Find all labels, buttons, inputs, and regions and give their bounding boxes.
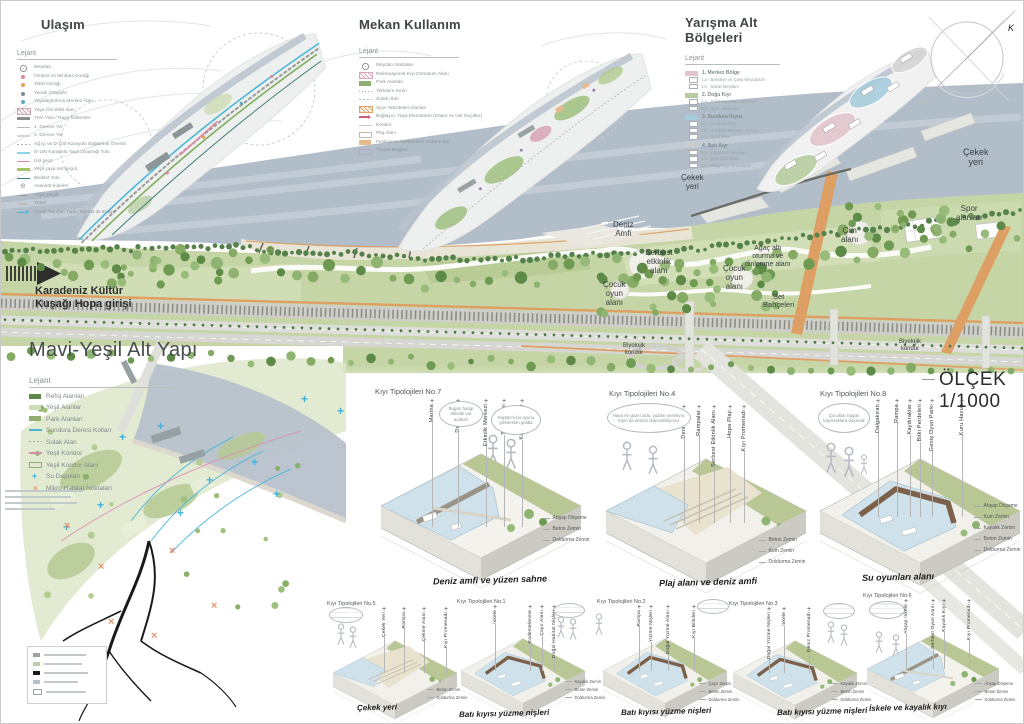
leader-line	[404, 628, 405, 673]
micro-habitat-icon: ×	[151, 632, 157, 640]
legend-item: Yeşil yaya üst geçidi	[17, 167, 129, 173]
callout-label-text: Ahşap İskele	[904, 604, 909, 634]
leader-line	[744, 451, 745, 523]
typology-title: Kıyı Tipolojileri No.4	[609, 389, 675, 398]
callout-label-text: Kıyı Promenadı	[741, 410, 747, 451]
callout-label: + Kıyı Promenadı	[739, 405, 749, 523]
material-label: Doldurma Zemin	[975, 697, 1015, 702]
legend-item-label: Yerleşim Sınırı	[376, 89, 407, 95]
typology-title: Kıyı Tipolojileri No.8	[820, 389, 886, 398]
callout-label-text: Kıyı Promenadı	[444, 612, 449, 648]
leader-line	[694, 638, 695, 671]
material-labels: Ahşap DöşemeKum ZeminKayalık ZeminBeton …	[974, 503, 1020, 558]
water-storage-icon: +	[251, 458, 258, 466]
illegible-note	[5, 508, 55, 510]
legend-sub-swatch	[689, 84, 698, 90]
leader-line	[769, 659, 770, 673]
legend-item: 1. Derece Yol	[17, 125, 129, 131]
legend-swatch	[17, 167, 30, 173]
callout-label-text: Dalgakıran	[875, 404, 881, 433]
water-storage-icon: +	[119, 433, 126, 441]
mini-legend	[27, 646, 107, 704]
legend-item: Park Alanları	[359, 80, 489, 86]
legend-swatch	[359, 89, 372, 95]
legend-item-label: Üst geçit	[34, 159, 53, 165]
legend-swatch	[685, 143, 698, 148]
callout-label-text: Kuru Havuz	[959, 404, 965, 435]
legend-item: Yaya Öncelikli Alan	[17, 108, 129, 114]
callout-labels: + Doğal Yüzme Nişleri + İskele + Deniz P…	[725, 607, 865, 673]
map-label: Serbest etkinlik alanı	[645, 249, 673, 276]
legend-subitem-label: 3.c - Sahil Yolu	[701, 134, 729, 139]
callout-label-text: Serbest Oyun Alanı	[931, 604, 936, 649]
leader-line	[944, 632, 945, 669]
callout-label-text: Doğal Yüzme Nişleri	[767, 612, 772, 659]
legend-swatch	[359, 148, 372, 154]
legend-item-label: Festival ve Geleneksel Kullanımlar	[376, 140, 450, 146]
callout-label: + Kıyı Promenadı	[441, 607, 451, 673]
water-storage-icon: +	[273, 490, 280, 498]
callout-label-text: İskele	[493, 610, 498, 624]
material-label: Ahşap Döşeme	[975, 681, 1015, 686]
material-label: Doldurma Zemin	[543, 537, 589, 543]
illegible-note	[5, 496, 71, 498]
legend-subitem: 1.a - Belediye ve Çarşı Meydanları	[689, 77, 815, 83]
callout-labels: + Çekek Yeri + Rampa + Çekme Alanı	[323, 607, 463, 673]
legend-list: Meydan Noktaları Rekreasyonel Kıyı Dönüş…	[359, 63, 489, 154]
scale-tick	[922, 379, 935, 380]
leader-line	[878, 433, 879, 517]
callout-label: + Dalgakıran	[873, 399, 883, 517]
leader-line	[969, 640, 970, 669]
legend-swatch	[17, 82, 30, 88]
typology-caption: Su oyunları alanı	[862, 571, 934, 583]
legend-subitem-label: 4.b - Spor Etkinlikleri	[701, 156, 739, 161]
callout-label-text: Kayalık Kıyı	[942, 604, 947, 632]
legend-item-label: Sundura Deresi Kolları	[46, 427, 111, 434]
legend-item-label: Bisiklet Yolu	[34, 176, 60, 182]
legend-group-label: 2. Doğu Kıyı	[702, 92, 731, 98]
callout-label: + İskele	[779, 607, 789, 673]
callout-label: + Çayır Alanı	[537, 605, 547, 671]
legend-item: Ticaret Bölgesi	[359, 148, 489, 154]
legend-swatch	[17, 91, 30, 97]
typology-block-6: Kıyı Tipolojileri No.6 + Ahşap İskele + …	[857, 589, 1007, 721]
callout-label-text: Kıyı Promenadı	[967, 604, 972, 640]
callout-label: + Yüzme Nişleri	[646, 605, 656, 671]
callout-label-text: Rampa	[894, 404, 900, 423]
section-title-mekan: Mekan Kullanım	[359, 17, 489, 32]
legend-item: Meydan Noktaları	[359, 63, 489, 69]
legend-swatch	[359, 123, 372, 129]
legend-swatch	[359, 63, 372, 69]
legend-subitem-label: 2.a - Sahil Karşılama Merkezi	[701, 99, 756, 104]
legend-item-label: Taksi Durağı	[34, 82, 61, 88]
callout-label-text: Çekme Alanı	[422, 612, 427, 641]
legend-item: Festival ve Geleneksel Kullanımlar	[359, 140, 489, 146]
legend-swatch	[17, 159, 30, 165]
callout-label-text: Bitki Perdeleri	[917, 404, 923, 442]
map-label: Spor alanları	[956, 205, 982, 223]
typology-title: Kıyı Tipolojileri No.7	[375, 387, 441, 396]
legend-swatch	[17, 184, 30, 190]
legend-sub-swatch	[689, 77, 698, 83]
legend-swatch	[17, 65, 30, 71]
legend-swatch	[17, 74, 30, 80]
legend-item: Su Depoları	[29, 473, 209, 480]
legend-item-label: Meydan	[34, 65, 51, 71]
callout-label: + Rampa	[634, 605, 644, 671]
speech-bubble: Kaptan'a bu oyunu gösterelim galiba	[491, 405, 541, 435]
callout-label-text: Kademelenme	[528, 610, 533, 643]
legend-swatch	[17, 201, 30, 207]
leader-line	[486, 446, 487, 527]
legend-item-label: D-100 Karayolu Yaya Dinamiği Yolu	[34, 150, 110, 156]
water-storage-icon: +	[157, 422, 164, 430]
material-label: Doldurma Zemin	[759, 559, 805, 565]
legend-item-label: Kırsal Alandan Toplu Taşıma ile Erişim	[34, 210, 115, 216]
legend-item: Asansör kuleleri	[17, 184, 129, 190]
legend-swatch	[685, 71, 698, 76]
water-storage-icon: +	[301, 395, 308, 403]
material-label: Kum Zemin	[974, 514, 1020, 520]
legend-swatch	[29, 473, 42, 479]
legend-item-label: 1. Derece Yol	[34, 125, 63, 131]
legend-item-label: Ağ içi ve D-100 Karayolu Bağlantısı Öner…	[34, 142, 126, 148]
legend-item-label: Yeşil yaya üst geçidi	[34, 167, 77, 173]
typology-block-2: Kıyı Tipolojileri No.2 + Rampa + Yüzme N…	[593, 597, 733, 721]
legend-swatch	[17, 99, 30, 105]
legend-swatch	[359, 72, 372, 78]
panel-mavi-yesil: Mavi-Yeşil Alt Yapı Lejant Refüj Alanlar…	[29, 339, 209, 496]
callout-label: + Deniz Promenadı	[804, 607, 814, 673]
legend-groups: 1. Merkez Bölge 1.a - Belediye ve Çarşı …	[685, 70, 815, 168]
legend-item: Kırsal Alandan Toplu Taşıma ile Erişim	[17, 210, 129, 216]
legend-subitem: 3.c - Sahil Yolu	[689, 134, 815, 140]
typology-block-5: Kıyı Tipolojileri No.5 + Çekek Yeri + Ra…	[323, 599, 463, 721]
callout-label: + Kuru Havuz	[957, 399, 967, 517]
legend-swatch	[359, 106, 372, 112]
section-title-mavi-yesil: Mavi-Yeşil Alt Yapı	[29, 339, 209, 362]
leader-line	[730, 438, 731, 523]
leader-line	[424, 641, 425, 673]
callout-label: + Rampa	[892, 399, 902, 517]
legend-item: Meydan	[17, 65, 129, 71]
panel-mekan: Mekan Kullanım Lejant Meydan Noktaları R…	[359, 17, 489, 157]
typology-block-3: Kıyı Tipolojileri No.3 + Doğal Yüzme Niş…	[725, 599, 865, 721]
legend-item-label: 2. Derece Yol	[34, 133, 63, 139]
legend-item: Koridor	[359, 123, 489, 129]
leader-line	[906, 634, 907, 669]
micro-habitat-icon: ×	[64, 522, 70, 530]
legend-group-label: 3. Sundura Kıyısı	[702, 114, 743, 120]
map-label: Çocuk oyun alanı	[723, 265, 746, 292]
legend-swatch	[29, 416, 42, 422]
callout-label: + Kayalık Kıyı	[939, 599, 949, 669]
legend-subitem: 2.a - Sahil Karşılama Merkezi	[689, 99, 815, 105]
legend-item: Sulak Alan	[359, 97, 489, 103]
micro-habitat-icon: ×	[98, 563, 104, 571]
legend-item: Yayalaştırılmış Merkez Alan	[17, 99, 129, 105]
water-storage-icon: +	[337, 407, 344, 415]
material-label: Doldurma Zemin	[974, 547, 1020, 553]
legend-swatch	[359, 97, 372, 103]
speech-bubble: Hava ne güzel oldu; yazları serinliyor, …	[607, 403, 691, 433]
micro-habitat-icon: ×	[108, 618, 114, 626]
material-label: Beton Zemin	[975, 689, 1015, 694]
legend-subitem: 1.b - Sanat Meydanı	[689, 84, 815, 90]
map-label: Biyolojik koridor	[899, 339, 921, 352]
callout-label-text: Doğal Yüzme Alanı	[666, 610, 671, 654]
legend-item-label: Sulak Alan	[46, 439, 77, 446]
legend-item: Tünel	[17, 201, 129, 207]
callout-label: + İskele	[490, 605, 500, 671]
speech-bubble: Çocuklar bugün kaydıraklara doyacak	[818, 403, 870, 433]
legend-item-label: Yeşil Alanlar	[46, 404, 81, 411]
leader-line	[554, 658, 555, 671]
typology-block-7: Kıyı Tipolojileri No.7 + Marina + Deniz …	[375, 385, 587, 595]
leader-line	[522, 440, 523, 527]
callout-label: + Çekme Alanı	[419, 607, 429, 673]
water-storage-icon: +	[177, 509, 184, 517]
legend-item-label: Otobüs ve Minibüs Durağı	[34, 74, 89, 80]
legend-list: Meydan Otobüs ve Minibüs Durağı Taksi Du…	[17, 65, 129, 216]
legend-subitem-label: 4.c - Bölge Kıyı ve Gelişimi	[701, 163, 751, 168]
legend-subitem: 4.c - Bölge Kıyı ve Gelişimi	[689, 163, 815, 169]
leader-line	[384, 637, 385, 673]
legend-sub-swatch	[689, 99, 698, 105]
legend-item: Taksi Durağı	[17, 82, 129, 88]
legend-subitem-label: 2.b - Spor Aktiviteleri	[701, 106, 739, 111]
material-labels: Ahşap DöşemeBeton ZeminDoldurma Zemin	[543, 515, 589, 548]
callout-label: + Rampa	[399, 607, 409, 673]
leader-line	[446, 648, 447, 673]
legend-item: Yeşil Koridor	[29, 450, 209, 457]
callout-label-text: İskele	[782, 612, 787, 626]
section-title-yarisma: Yarışma Alt Bölgeleri	[685, 15, 815, 45]
water-storage-icon: +	[97, 501, 104, 509]
leader-line	[714, 467, 715, 523]
legend-item-label: Bağlayıcı Yaya Elemanları (Köprü ve Üst …	[376, 114, 482, 120]
legend-swatch	[359, 114, 372, 120]
section-title-ulasim: Ulaşım	[41, 17, 129, 32]
material-label: Beton Zemin	[543, 526, 589, 532]
micro-habitat-icon: ×	[211, 602, 217, 610]
legend-item-label: Yaya Öncelikli Alan	[34, 108, 75, 114]
legend-item: Tren Yolu / Raylı Sistemler	[17, 116, 129, 122]
legend-item: Refüj Alanları	[29, 393, 209, 400]
legend-item-label: Yeşil Koridor Alanı	[46, 462, 99, 469]
legend-item: Üst geçit	[17, 159, 129, 165]
callout-label: + Serbest Etkinlik Alanı	[709, 405, 719, 523]
map-label: Ağaç altı oturma ve dinlenme alanı	[745, 245, 791, 268]
leader-line	[651, 642, 652, 671]
legend-sub-swatch	[689, 106, 698, 112]
map-label: Çekek yeri	[681, 174, 704, 192]
legend-item-label: Yayalaştırılmış Merkez Alan	[34, 99, 93, 105]
legend-item-label: Tren Yolu / Raylı Sistemler	[34, 116, 90, 122]
callout-label-text: Kaydıraklar	[907, 404, 913, 435]
legend-item: Bisiklet Yolu	[17, 176, 129, 182]
legend-sub-swatch	[689, 156, 698, 162]
material-labels: Ahşap DöşemeBeton ZeminDoldurma Zemin	[975, 681, 1015, 705]
callout-label-text: Kıyı Bitkileri	[692, 610, 697, 638]
legend-item-label: Su Depoları	[46, 473, 80, 480]
legend-item: Ağ içi ve D-100 Karayolu Bağlantısı Öner…	[17, 142, 129, 148]
legend-title: Lejant	[29, 376, 174, 388]
legend-sub-swatch	[689, 134, 698, 140]
speech-bubble: Bugün hangi etkinlik var acaba?	[439, 401, 483, 427]
legend-swatch	[17, 210, 30, 216]
legend-subitem-label: 4.a - Karşılama Meydanı	[701, 150, 747, 155]
leader-line	[458, 433, 459, 527]
legend-swatch	[29, 393, 42, 399]
callout-label: + Marina	[427, 399, 437, 527]
callout-label: + Kaydıraklar	[905, 399, 915, 517]
legend-item: 2. Derece Yol	[17, 133, 129, 139]
callout-label-text: Rampalar	[696, 410, 702, 436]
illegible-note	[5, 502, 77, 504]
legend-title: Lejant	[359, 48, 459, 58]
callout-label: + Doğal Yüzme Nişleri	[764, 607, 774, 673]
legend-item: Rekreasyonel Kıyı Dönüşüm Alanı	[359, 72, 489, 78]
map-label: Çocuk oyun alanı	[603, 281, 626, 308]
callout-label-text: Etkinlik Merkezi	[483, 404, 489, 446]
map-label: Deniz Amfi	[613, 221, 633, 239]
legend-swatch	[359, 140, 372, 146]
legend-swatch	[685, 93, 698, 98]
legend-item: D-100 Karayolu Yaya Dinamiği Yolu	[17, 150, 129, 156]
legend-swatch	[29, 439, 42, 445]
legend-subitem: 3.a - Sundura Plajı	[689, 121, 815, 127]
callout-labels: + Rampa + Yüzme Nişleri + Doğal Yüzme Al…	[593, 605, 733, 671]
legend-title: Lejant	[685, 55, 780, 65]
callout-label: + Rampalar	[694, 405, 704, 523]
map-label: Biyolojik koridor	[623, 343, 645, 356]
callout-label: + Ahşap İskele	[901, 599, 911, 669]
callout-label: + Etkinlik Merkezi	[481, 399, 491, 527]
callout-label-text: Marina	[429, 404, 435, 422]
legend-subitem: 4.a - Karşılama Meydanı	[689, 150, 815, 156]
legend-item: Plaj Alanı	[359, 131, 489, 137]
callout-label-text: Hopa Plajı	[727, 410, 733, 438]
material-labels: Beton ZeminKum ZeminDoldurma Zemin	[759, 537, 805, 570]
callout-labels: + İskele + Kademelenme + Çayır Alanı	[453, 605, 593, 671]
material-label: Beton Zemin	[974, 536, 1020, 542]
legend-subitem-label: 3.a - Sundura Plajı	[701, 121, 736, 126]
legend-subitem: 3.b - Sundura Meydanı ve Kıyı	[689, 128, 815, 134]
leader-line	[932, 451, 933, 517]
callout-label: + Kademelenme	[525, 605, 535, 671]
callout-label: + Bitki Perdeleri	[915, 399, 925, 517]
legend-item: Yeşil Alanlar	[29, 404, 209, 411]
legend-item-label: Refüj Alanları	[46, 393, 85, 400]
legend-item-label: Ticaret Bölgesi	[376, 148, 408, 154]
micro-habitat-icon: ×	[169, 547, 175, 555]
callout-label: + Çekek Yeri	[379, 607, 389, 673]
leader-line	[910, 435, 911, 518]
legend-item-label: Park Alanları	[46, 416, 83, 423]
legend-swatch	[29, 450, 42, 456]
legend-swatch	[359, 80, 372, 86]
callout-label-text: Serbest Etkinlik Alanı	[711, 410, 717, 467]
legend-item-label: Plaj Alanı	[376, 131, 396, 137]
legend-swatch	[17, 142, 30, 148]
typology-block-4: Kıyı Tipolojileri No.4 + Deniz Amfi + Ra…	[601, 389, 811, 594]
legend-title: Lejant	[17, 50, 117, 60]
typology-block-8: Kıyı Tipolojileri No.8 + Dalgakıran + Ra…	[816, 387, 1024, 592]
leader-line	[530, 643, 531, 671]
legend-group: 2. Doğu Kıyı 2.a - Sahil Karşılama Merke…	[685, 92, 815, 111]
material-label: Ahşap Döşeme	[543, 515, 589, 521]
legend-item-label: Meydan Noktaları	[376, 63, 414, 69]
legend-item: Otobüs ve Minibüs Durağı	[17, 74, 129, 80]
legend-sub-swatch	[689, 150, 698, 156]
leader-line	[504, 435, 505, 527]
legend-item: Yeşil Koridor Alanı	[29, 462, 209, 469]
legend-sub-swatch	[689, 121, 698, 127]
legend-item-label: Sulak Alan	[376, 97, 399, 103]
leader-line	[809, 652, 810, 673]
callout-label-text: Deniz Promenadı	[807, 612, 812, 652]
map-label: Çekek yeri	[963, 147, 989, 167]
leader-line	[495, 624, 496, 671]
legend-swatch	[17, 133, 30, 139]
map-label: Set Bahçeleri	[763, 293, 794, 310]
legend-swatch	[17, 116, 30, 122]
legend-subitem-label: 3.b - Sundura Meydanı ve Kıyı	[701, 128, 758, 133]
competition-board: K Ulaşım Lejant Meydan Otobüs ve Minibüs…	[0, 0, 1024, 724]
callout-label-text: Rampa	[402, 612, 407, 628]
typology-caption: Çekek yeri	[357, 702, 397, 712]
legend-swatch	[29, 462, 42, 468]
material-label: Kayalık Zemin	[974, 525, 1020, 531]
callout-labels: + Ahşap İskele + Serbest Oyun Alanı + Ka…	[857, 599, 1007, 669]
legend-item-label: Yeşil Koridor	[46, 450, 82, 457]
leader-line	[962, 435, 963, 517]
leader-line	[897, 423, 898, 517]
map-label: Çim alanı	[841, 227, 858, 245]
typology-block-1: Kıyı Tipolojileri No.1 + İskele + Kademe…	[453, 597, 593, 721]
legend-subitem-label: 1.b - Sanat Meydanı	[701, 84, 739, 89]
legend-swatch	[17, 176, 30, 182]
leader-line	[920, 442, 921, 517]
legend-swatch	[359, 131, 372, 137]
callout-label-text: Doğal Habitat Nişleri	[552, 610, 557, 658]
legend-item-label: Yeraltı Otoparkı	[34, 91, 67, 97]
legend-item-label: Koridor	[376, 123, 391, 129]
callout-label-text: Geniş Oyun Parkı	[929, 404, 935, 451]
callout-label-text: Yüzme Nişleri	[649, 610, 654, 642]
leader-line	[784, 626, 785, 673]
legend-swatch	[29, 404, 42, 410]
legend-subitem: 2.b - Spor Aktiviteleri	[689, 106, 815, 112]
legend-group-label: 4. Batı Kıyı	[702, 143, 728, 149]
callout-label: + Doğal Yüzme Alanı	[663, 605, 673, 671]
legend-item-label: Yaya geçidi	[34, 193, 58, 199]
legend-item: Yerleşim Sınırı	[359, 89, 489, 95]
panel-ulasim: Ulaşım Lejant Meydan Otobüs ve Minibüs D…	[17, 17, 129, 218]
legend-subitem: 4.b - Spor Etkinlikleri	[689, 156, 815, 162]
legend-swatch	[17, 150, 30, 156]
leader-line	[699, 436, 700, 523]
leader-line	[542, 636, 543, 671]
leader-line	[668, 654, 669, 671]
legend-item-label: Rekreasyonel Kıyı Dönüşüm Alanı	[376, 72, 449, 78]
callout-label: + Doğal Habitat Nişleri	[549, 605, 559, 671]
leader-line	[639, 626, 640, 671]
entrance-label: Karadeniz Kültür Kuşağı Hopa girişi	[35, 285, 132, 310]
